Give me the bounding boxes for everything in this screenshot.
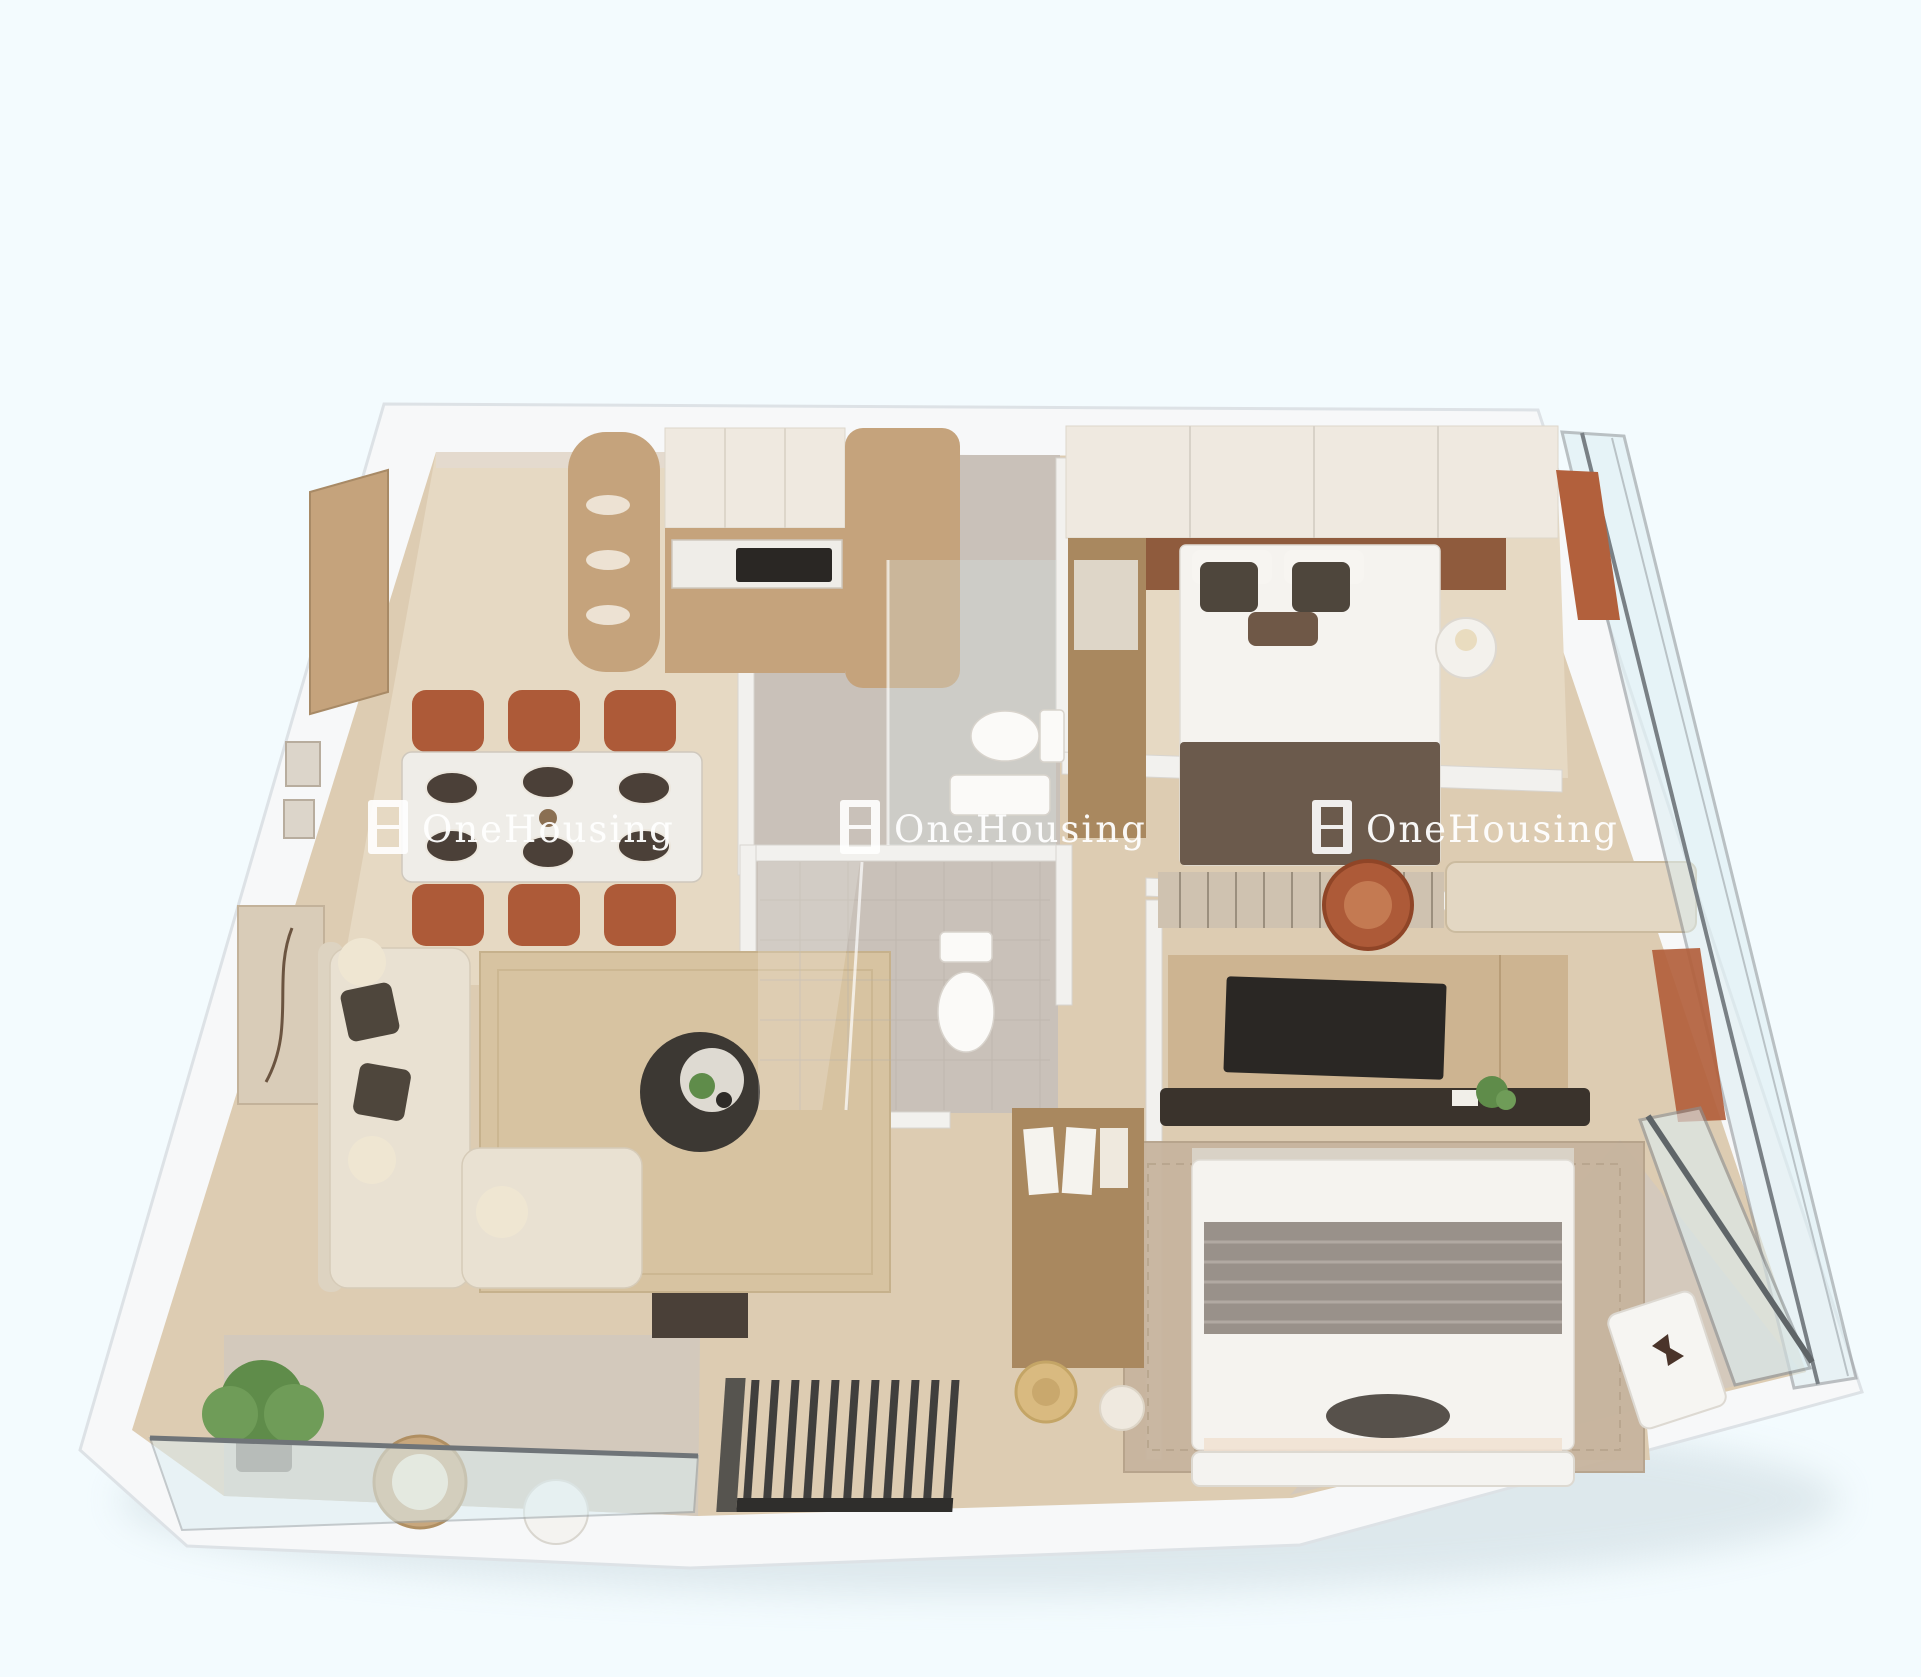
onehousing-logo-icon: [1312, 800, 1352, 858]
onehousing-logo-icon: [840, 800, 880, 858]
table-decor: [716, 1092, 732, 1108]
floorplan-render: OneHousing OneHousing OneHousing: [0, 0, 1921, 1677]
hanging-clothes: [1023, 1127, 1059, 1195]
cushion-cream: [348, 1136, 396, 1184]
hanging-clothes: [1062, 1127, 1097, 1195]
pillow-patterned: [1292, 562, 1350, 612]
pouf: [1100, 1386, 1144, 1430]
watermark: OneHousing: [840, 800, 1147, 858]
console-decor: [1452, 1090, 1478, 1106]
dining-chair: [604, 884, 676, 946]
watermark-text: OneHousing: [1366, 808, 1619, 851]
straw-hat-crown: [1032, 1378, 1060, 1406]
table-plant: [689, 1073, 715, 1099]
watermark-text: OneHousing: [422, 808, 675, 851]
built-in-wardrobe: [1066, 426, 1558, 538]
pillow-patterned: [1200, 562, 1258, 612]
toilet: [938, 972, 994, 1052]
toilet-tank: [1040, 710, 1064, 762]
cooktop: [736, 548, 832, 582]
potted-plant: [202, 1386, 258, 1442]
media-console: [1160, 1088, 1590, 1126]
lumbar-pillow: [1248, 612, 1318, 646]
cushion-dark: [339, 981, 401, 1043]
entry-door: [310, 470, 388, 714]
table-lamp: [1455, 629, 1477, 651]
foot-pillow: [1326, 1394, 1450, 1438]
shelf-decor: [586, 495, 630, 515]
watermark: OneHousing: [1312, 800, 1619, 858]
dining-chair: [604, 690, 676, 752]
wall-frame: [284, 800, 314, 838]
onehousing-logo-icon: [368, 800, 408, 858]
folded-throw: [1074, 560, 1138, 650]
foot-bench: [1192, 1452, 1574, 1486]
cushion-cream: [476, 1186, 528, 1238]
tv-screen: [1223, 976, 1446, 1080]
upper-cabinets: [665, 428, 845, 528]
watermark-text: OneHousing: [894, 808, 1147, 851]
grey-striped-blanket: [1204, 1222, 1562, 1334]
toilet-tank: [940, 932, 992, 962]
toilet: [971, 711, 1039, 761]
dining-chair: [508, 884, 580, 946]
dining-chair: [508, 690, 580, 752]
cushion-dark: [352, 1062, 412, 1122]
upholstered-bench: [1446, 862, 1696, 932]
dining-chair: [412, 884, 484, 946]
shelf-decor: [586, 550, 630, 570]
console-plant: [1496, 1090, 1516, 1110]
watermark: OneHousing: [368, 800, 675, 858]
wall-frame: [286, 742, 320, 786]
wall-art-panel: [238, 906, 324, 1104]
wall-bath-right: [1056, 845, 1072, 1005]
dining-chair: [412, 690, 484, 752]
cushion-cream: [338, 938, 386, 986]
hanging-clothes: [1100, 1128, 1128, 1188]
shelf-decor: [586, 605, 630, 625]
place-setting: [522, 766, 574, 798]
potted-plant: [264, 1384, 324, 1444]
chair-seat: [1344, 881, 1392, 929]
